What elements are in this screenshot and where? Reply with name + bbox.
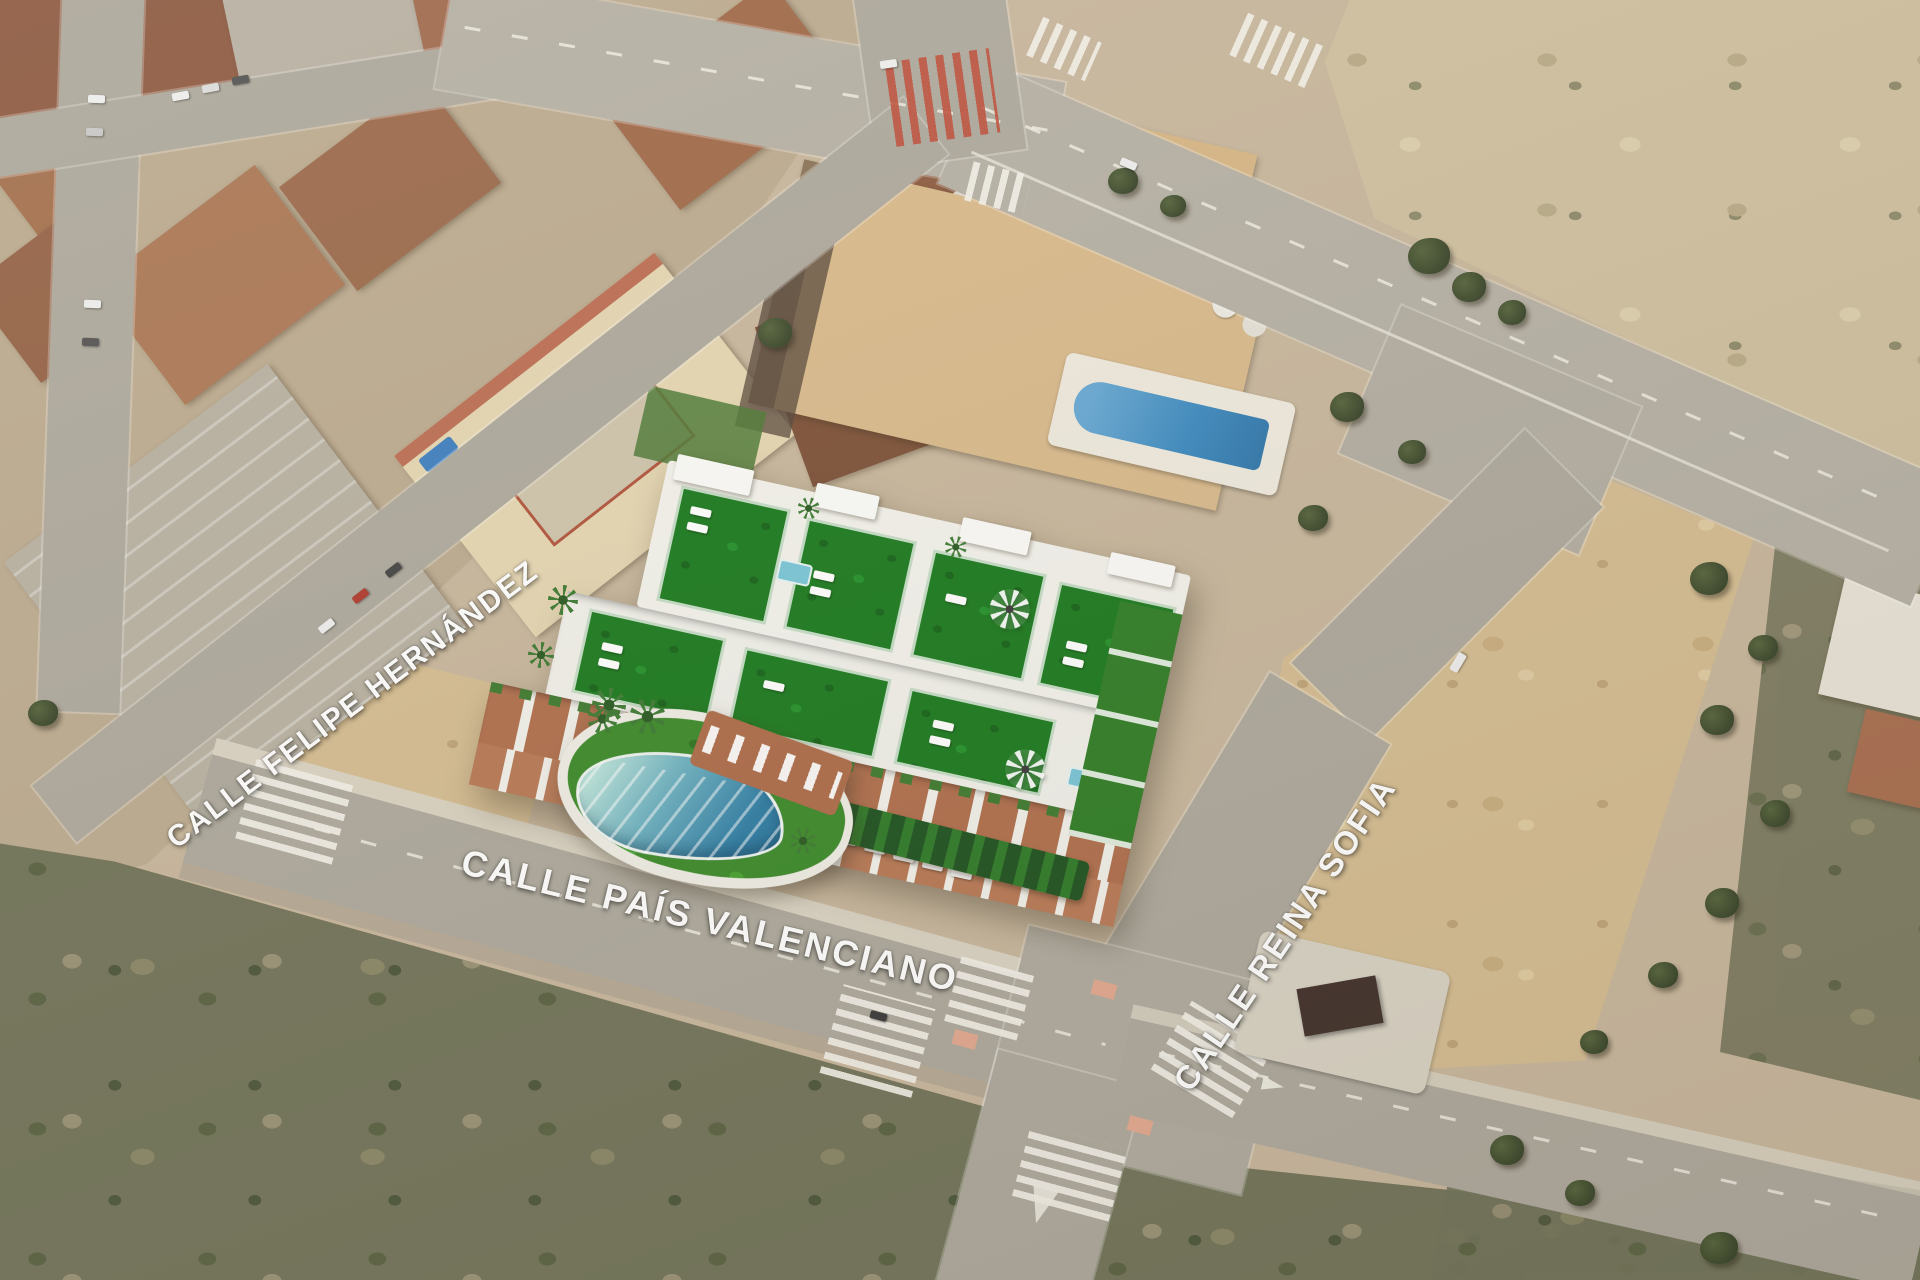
palm-tree [548,585,578,615]
tree [1298,505,1328,531]
tree [1565,1180,1595,1206]
parked-car [84,300,101,309]
tree [1700,705,1734,735]
tree [1700,1232,1738,1264]
tree [28,700,58,726]
aerial-map-scene: CALLE FELIPE HERNÁNDEZ CALLE PAÍS VALENC… [0,0,1920,1280]
crosswalk [1229,13,1325,90]
crosswalk [1026,17,1102,81]
parked-car [86,128,103,137]
tree [1690,562,1728,595]
tree [1498,300,1526,325]
roof-garden [656,485,791,624]
palm-tree [592,688,626,722]
parked-car [82,338,99,347]
tree [1760,800,1790,827]
crosswalk-red [885,48,1001,147]
tree [1330,392,1364,422]
penthouse-volume [1107,552,1176,588]
tree [1408,238,1450,274]
parked-car [88,95,105,104]
tree [1398,440,1426,464]
penthouse-volume [958,517,1032,556]
palm-tree [528,642,554,668]
tree [758,318,792,348]
tree [1705,888,1739,918]
tree [1108,168,1138,194]
tree [1748,635,1778,661]
tree [1648,962,1678,988]
tree [1160,195,1186,217]
tree [1490,1135,1524,1165]
penthouse-volume [812,483,880,520]
tree [1452,272,1486,302]
tree [1580,1030,1608,1054]
